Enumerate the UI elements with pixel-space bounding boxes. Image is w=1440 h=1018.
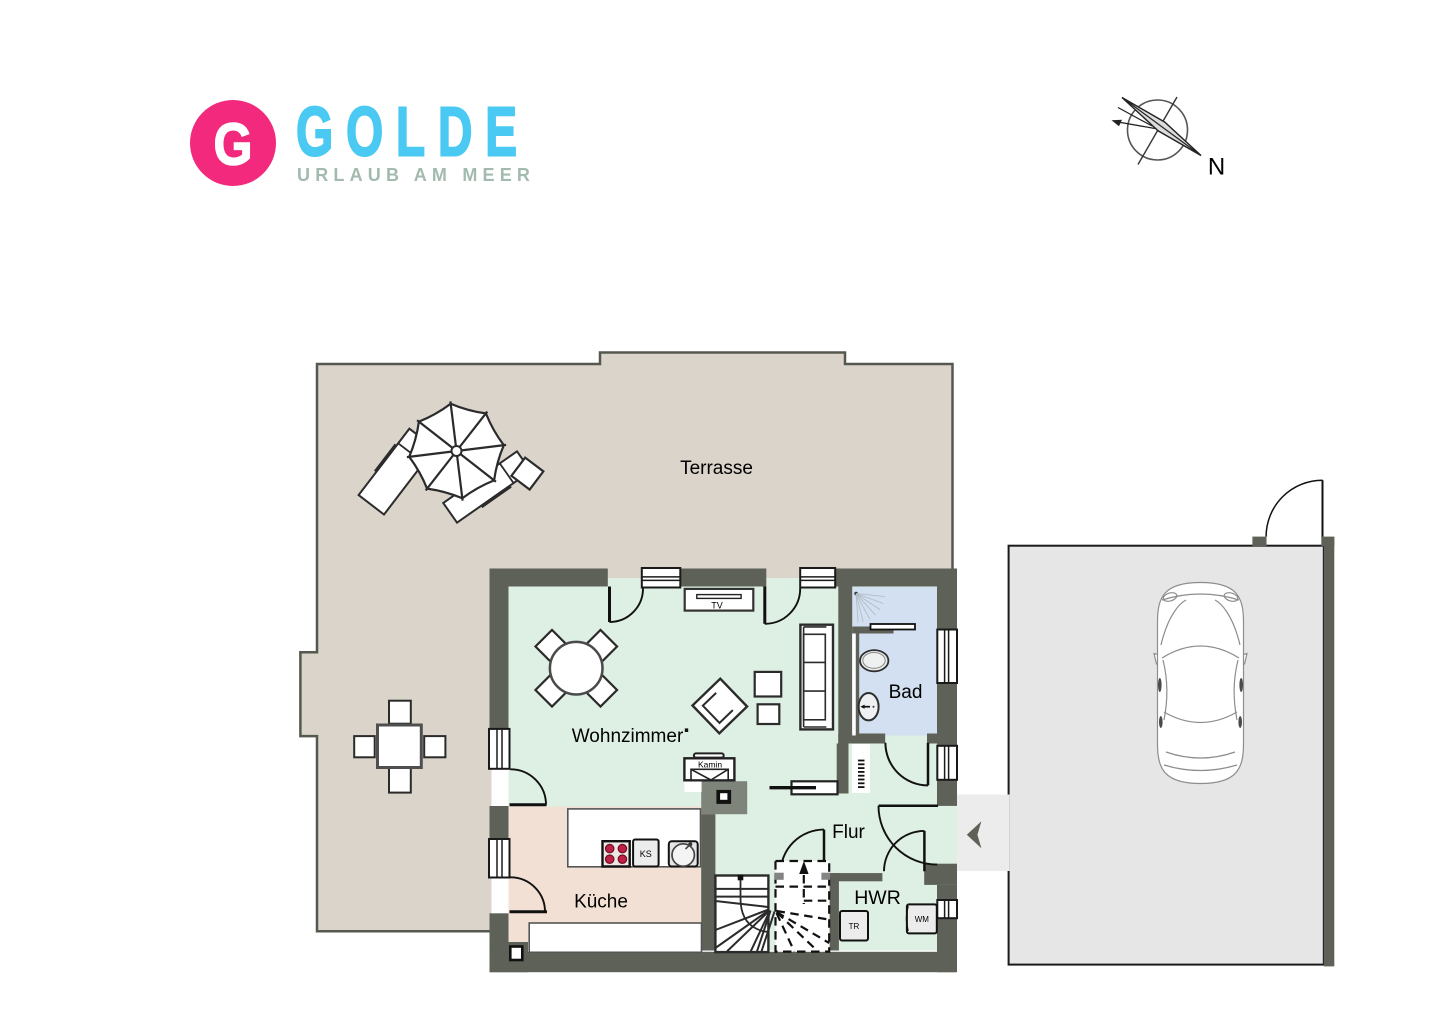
svg-text:URLAUB AM MEER: URLAUB AM MEER [297,165,535,185]
svg-text:Wohnzimmer: Wohnzimmer [572,726,684,747]
svg-text:TR: TR [849,922,860,931]
svg-text:HWR: HWR [854,887,901,909]
svg-text:N: N [1208,154,1225,181]
svg-text:GOLDE: GOLDE [296,92,530,170]
svg-text:G: G [213,111,252,178]
svg-text:WM: WM [915,915,930,924]
svg-text:Flur: Flur [832,822,865,843]
svg-text:KS: KS [640,849,652,859]
svg-text:Küche: Küche [574,892,628,913]
svg-text:Bad: Bad [889,682,923,703]
svg-text:Terrasse: Terrasse [680,458,753,479]
svg-text:Kamin: Kamin [698,760,722,770]
svg-text:TV: TV [711,601,723,611]
